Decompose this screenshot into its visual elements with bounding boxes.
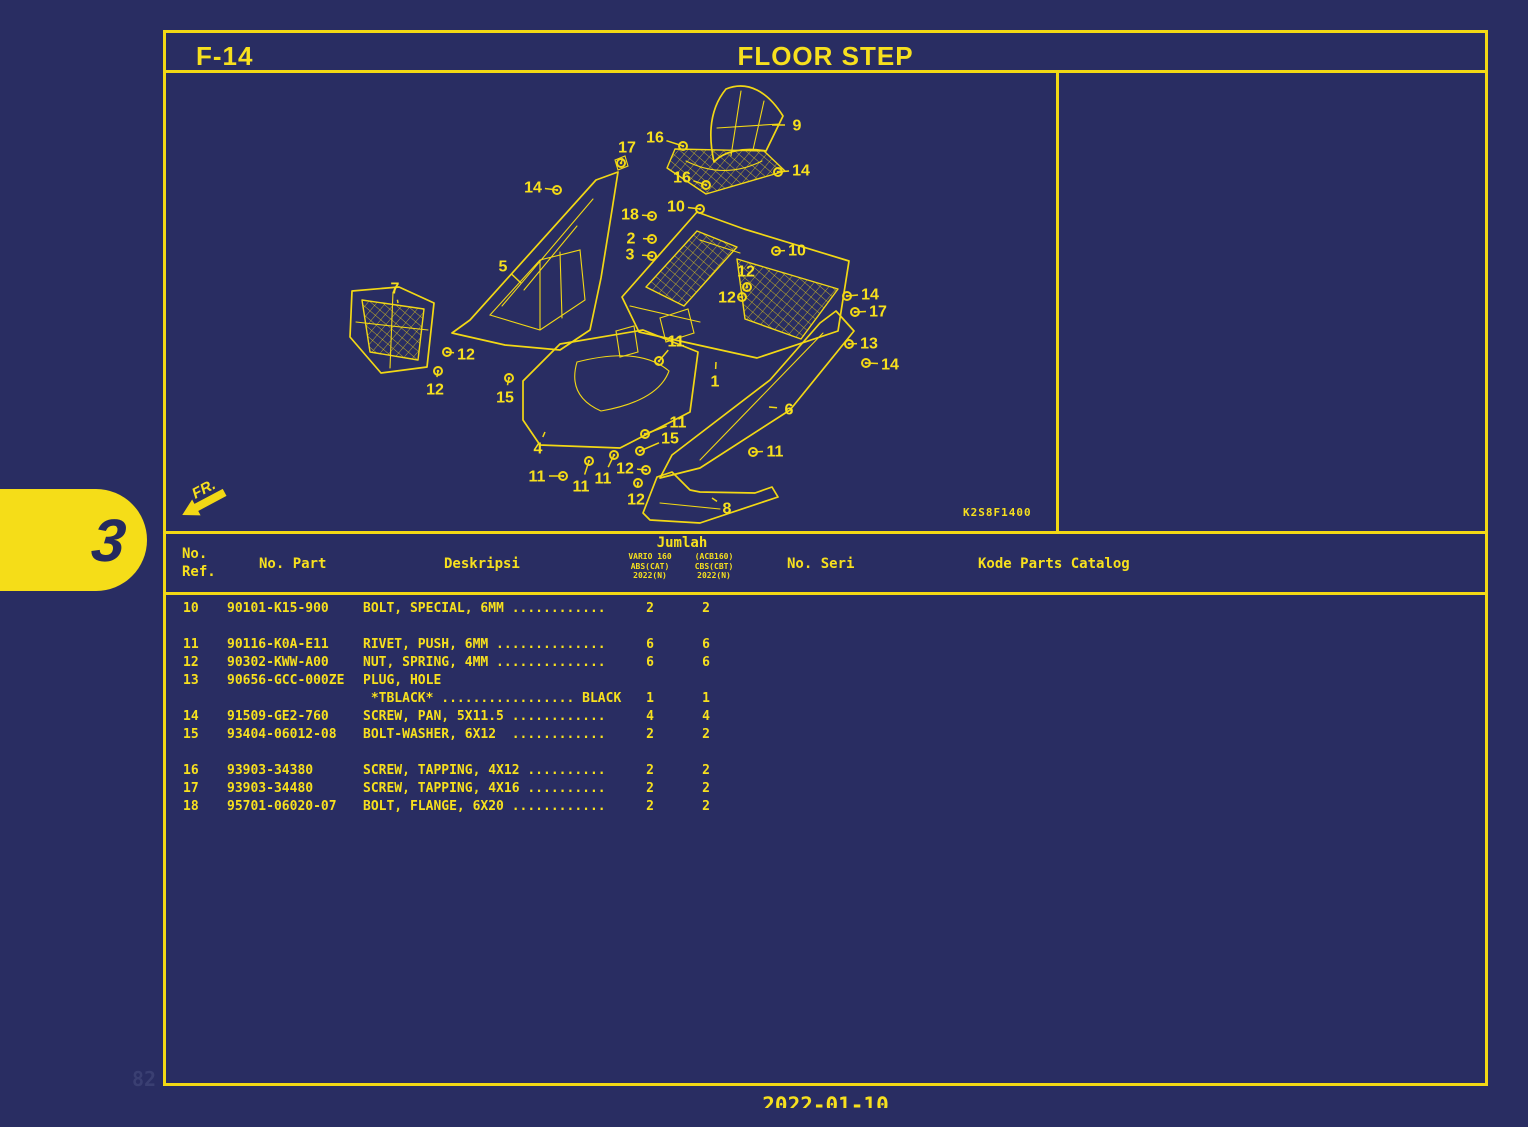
table-row: 1793903-34480SCREW, TAPPING, 4X16 ......… (163, 781, 1063, 799)
callout-number: 11 (670, 415, 687, 432)
cell-part: 90101-K15-900 (227, 601, 363, 619)
cell-q1: 2 (625, 763, 675, 781)
cell-desc: NUT, SPRING, 4MM .............. (363, 655, 625, 673)
callout-leader (642, 215, 652, 216)
callout-leader (642, 255, 652, 256)
callout-leader (688, 207, 700, 209)
table-row: 1090101-K15-900BOLT, SPECIAL, 6MM ......… (163, 601, 1063, 619)
cell-part: 90656-GCC-000ZE (227, 673, 363, 691)
fastener-icon-center (588, 460, 591, 463)
callout-leader (512, 274, 521, 283)
qty-variant-2: CBS(CBT) (682, 562, 746, 572)
callout-leader (847, 295, 858, 296)
callout-number: 16 (673, 170, 691, 187)
cell-part: 93903-34480 (227, 781, 363, 799)
cell-q1: 2 (625, 799, 675, 817)
cell-ref: 16 (183, 763, 227, 781)
cell-desc: SCREW, TAPPING, 4X12 .......... (363, 763, 625, 781)
callout-leader (545, 188, 557, 190)
fastener-icon-center (651, 215, 654, 218)
callout-number: 11 (668, 334, 685, 351)
table-header-bottom-divider (163, 592, 1488, 595)
qty-variant-1: ABS(CAT) (618, 562, 682, 572)
fastener-icon-center (437, 370, 440, 373)
callout-number: 4 (534, 441, 543, 458)
callout-number: 14 (524, 180, 542, 197)
qty-variant-row: ABS(CAT) CBS(CBT) (618, 562, 746, 572)
section-tab-label: 3 (88, 506, 129, 575)
fastener-icon-center (644, 433, 647, 436)
col-header-qty: Jumlah VARIO 160 (ACB160) ABS(CAT) CBS(C… (618, 535, 746, 581)
callout-leader (769, 407, 777, 408)
part-7-inner-cover (350, 287, 434, 373)
fastener-icon-center (705, 184, 708, 187)
callout-number: 10 (667, 199, 685, 216)
fastener-icon-center (508, 377, 511, 380)
callout-number: 16 (646, 130, 664, 147)
cell-q2: 2 (675, 799, 737, 817)
cell-ref: 13 (183, 673, 227, 691)
cell-ref (183, 691, 227, 709)
qty-year-2: 2022(N) (682, 571, 746, 581)
fastener-icon-center (651, 238, 654, 241)
callout-leader (543, 432, 545, 437)
table-row: 1390656-GCC-000ZEPLUG, HOLE *TBLACK* ...… (163, 673, 1063, 709)
cell-ref: 17 (183, 781, 227, 799)
cell-desc: BOLT-WASHER, 6X12 ............ (363, 727, 625, 745)
callout-number: 12 (457, 347, 475, 364)
page-root: { "colors": { "background": "#292d62", "… (0, 0, 1528, 1127)
cell-ref: 14 (183, 709, 227, 727)
fastener-icon-center (637, 482, 640, 485)
fastener-icon-center (746, 286, 749, 289)
diagram-svg: FR. 171691416141018231051271412171113121… (163, 73, 1057, 531)
part-8-step-garnish (643, 472, 778, 523)
fastener-icon-center (777, 171, 780, 174)
callout-number: 2 (627, 231, 636, 248)
cell-part: 90302-KWW-A00 (227, 655, 363, 673)
cell-desc: SCREW, TAPPING, 4X16 .......... (363, 781, 625, 799)
callout-number: 8 (723, 501, 732, 518)
callout-number: 15 (661, 431, 679, 448)
callout-number: 1 (711, 374, 720, 391)
qty-model-2: (ACB160) (682, 552, 746, 562)
fastener-icon-center (658, 360, 661, 363)
table-row: 1895701-06020-07BOLT, FLANGE, 6X20 .....… (163, 799, 1063, 817)
callout-number: 17 (618, 140, 636, 157)
fastener-icon-center (854, 311, 857, 314)
callout-number: 12 (737, 264, 755, 281)
cell-q2: 1 (675, 691, 737, 709)
col-header-ref: No.Ref. (182, 545, 216, 581)
cell-q2 (675, 673, 737, 691)
callout-number: 14 (792, 163, 810, 180)
fastener-icon-center (562, 475, 565, 478)
col-header-desc: Deskripsi (444, 556, 520, 572)
callout-number: 11 (529, 469, 546, 486)
fastener-icon-center (775, 250, 778, 253)
cell-q1: 6 (625, 637, 675, 655)
cell-desc: RIVET, PUSH, 6MM .............. (363, 637, 625, 655)
table-row: 1593404-06012-08BOLT-WASHER, 6X12 ......… (163, 727, 1063, 745)
cell-q1: 2 (625, 601, 675, 619)
cell-part: 93903-34380 (227, 763, 363, 781)
callout-number: 18 (621, 207, 639, 224)
callout-number: 12 (718, 290, 736, 307)
cell-desc: SCREW, PAN, 5X11.5 ............ (363, 709, 625, 727)
qty-model-1: VARIO 160 (618, 552, 682, 562)
cell-ref: 10 (183, 601, 227, 619)
fastener-icon-center (741, 296, 744, 299)
callout-number: 6 (785, 402, 794, 419)
cell-q1: 4 (625, 709, 675, 727)
cell-q1: 2 (625, 781, 675, 799)
table-row: 1693903-34380SCREW, TAPPING, 4X12 ......… (163, 763, 1063, 781)
footer-date: 2022-01-10 (163, 1093, 1488, 1108)
cell-q1: 6 (625, 655, 675, 673)
fastener-icon-center (556, 189, 559, 192)
fastener-icon-center (639, 450, 642, 453)
parts-table-body: 1090101-K15-900BOLT, SPECIAL, 6MM ......… (163, 601, 1063, 817)
table-header-top-divider (163, 531, 1488, 534)
front-direction-arrow: FR. (172, 474, 228, 523)
cell-desc: BOLT, SPECIAL, 6MM ............ (363, 601, 625, 619)
table-row: 1491509-GE2-760SCREW, PAN, 5X11.5 ......… (163, 709, 1063, 727)
callout-leader (397, 300, 398, 303)
qty-year-row: 2022(N) 2022(N) (618, 571, 746, 581)
cell-q1: 2 (625, 727, 675, 745)
callout-number: 11 (595, 471, 612, 488)
cell-part: 91509-GE2-760 (227, 709, 363, 727)
cell-ref: 11 (183, 637, 227, 655)
fastener-icon-center (752, 451, 755, 454)
image-code-label: K2S8F1400 (963, 506, 1032, 519)
cell-desc: PLUG, HOLE (363, 673, 625, 691)
cell-q2: 6 (675, 655, 737, 673)
fastener-icon-center (682, 145, 685, 148)
callout-number: 10 (788, 243, 806, 260)
callout-number: 12 (627, 492, 645, 509)
fastener-icon-center (446, 351, 449, 354)
col-header-catalog: Kode Parts Catalog (978, 556, 1130, 572)
callout-number: 11 (767, 444, 784, 461)
cell-ref: 15 (183, 727, 227, 745)
cell-ref: 12 (183, 655, 227, 673)
qty-group-label: Jumlah (618, 535, 746, 552)
cell-ref: 18 (183, 799, 227, 817)
callout-number: 15 (496, 390, 514, 407)
cell-q2: 4 (675, 709, 737, 727)
callout-number: 14 (881, 357, 899, 374)
fastener-icon-center (699, 208, 702, 211)
cell-q2: 2 (675, 763, 737, 781)
page-title: FLOOR STEP (163, 41, 1488, 72)
callout-leader (866, 363, 878, 364)
callout-number: 11 (573, 479, 590, 496)
cell-q1: 1 (625, 691, 675, 709)
fastener-icon-center (846, 295, 849, 298)
cell-part: 95701-06020-07 (227, 799, 363, 817)
cell-desc: *TBLACK* ................. BLACK (363, 691, 625, 709)
callout-number: 7 (391, 281, 400, 298)
cell-part: 90116-K0A-E11 (227, 637, 363, 655)
callout-number: 9 (793, 118, 802, 135)
callout-number: 17 (869, 304, 887, 321)
cell-q2: 2 (675, 601, 737, 619)
table-row: 1190116-K0A-E11RIVET, PUSH, 6MM ........… (163, 637, 1063, 655)
callout-leader (712, 498, 717, 501)
fastener-icon-center (613, 454, 616, 457)
cell-part (227, 691, 363, 709)
fastener-icon-center (620, 162, 623, 165)
callout-number: 12 (426, 382, 444, 399)
callout-number: 13 (860, 336, 878, 353)
cell-part: 93404-06012-08 (227, 727, 363, 745)
col-header-seri: No. Seri (787, 556, 854, 572)
fastener-icon-center (651, 255, 654, 258)
fastener-icon-center (865, 362, 868, 365)
callout-number: 3 (626, 247, 635, 264)
section-tab-3[interactable]: 3 (0, 489, 147, 591)
table-row: 1290302-KWW-A00NUT, SPRING, 4MM ........… (163, 655, 1063, 673)
cell-q2: 2 (675, 781, 737, 799)
qty-model-row: VARIO 160 (ACB160) (618, 552, 746, 562)
callout-number: 14 (861, 287, 879, 304)
fastener-icon-center (848, 343, 851, 346)
cell-q1 (625, 673, 675, 691)
callout-leader (778, 171, 789, 172)
col-header-part: No. Part (259, 556, 326, 572)
cell-q2: 6 (675, 637, 737, 655)
page-watermark: 82 (132, 1067, 156, 1091)
cell-desc: BOLT, FLANGE, 6X20 ............ (363, 799, 625, 817)
callout-number: 5 (499, 259, 508, 276)
callout-number: 12 (616, 461, 634, 478)
fastener-icon-center (645, 469, 648, 472)
qty-year-1: 2022(N) (618, 571, 682, 581)
cell-q2: 2 (675, 727, 737, 745)
